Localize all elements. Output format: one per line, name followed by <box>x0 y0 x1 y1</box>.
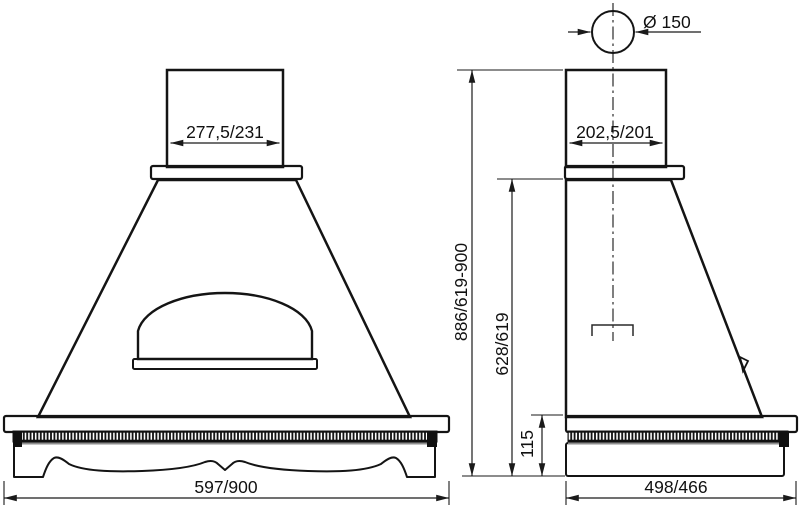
body-height-label: 628/619 <box>492 312 512 375</box>
side-duct-width-label: 202,5/201 <box>576 122 654 142</box>
side-dentil-molding <box>568 431 788 442</box>
front-dentil-end-cap-left <box>13 431 22 447</box>
depth-label: 498/466 <box>644 477 707 497</box>
front-duct-width-label: 277,5/231 <box>186 122 264 142</box>
side-dentil-end-cap <box>779 431 789 447</box>
range-hood-dimension-drawing: 277,5/231 597/900 Ø 150 <box>0 0 800 508</box>
total-height-label: 886/619-900 <box>451 243 471 342</box>
base-height-label: 115 <box>517 430 537 458</box>
front-dentil-end-cap-right <box>427 431 437 447</box>
technical-drawing-page: 277,5/231 597/900 Ø 150 <box>0 0 800 508</box>
front-base-width-label: 597/900 <box>194 477 258 497</box>
front-dentil-molding <box>13 431 437 442</box>
duct-diameter-label: Ø 150 <box>643 12 691 32</box>
